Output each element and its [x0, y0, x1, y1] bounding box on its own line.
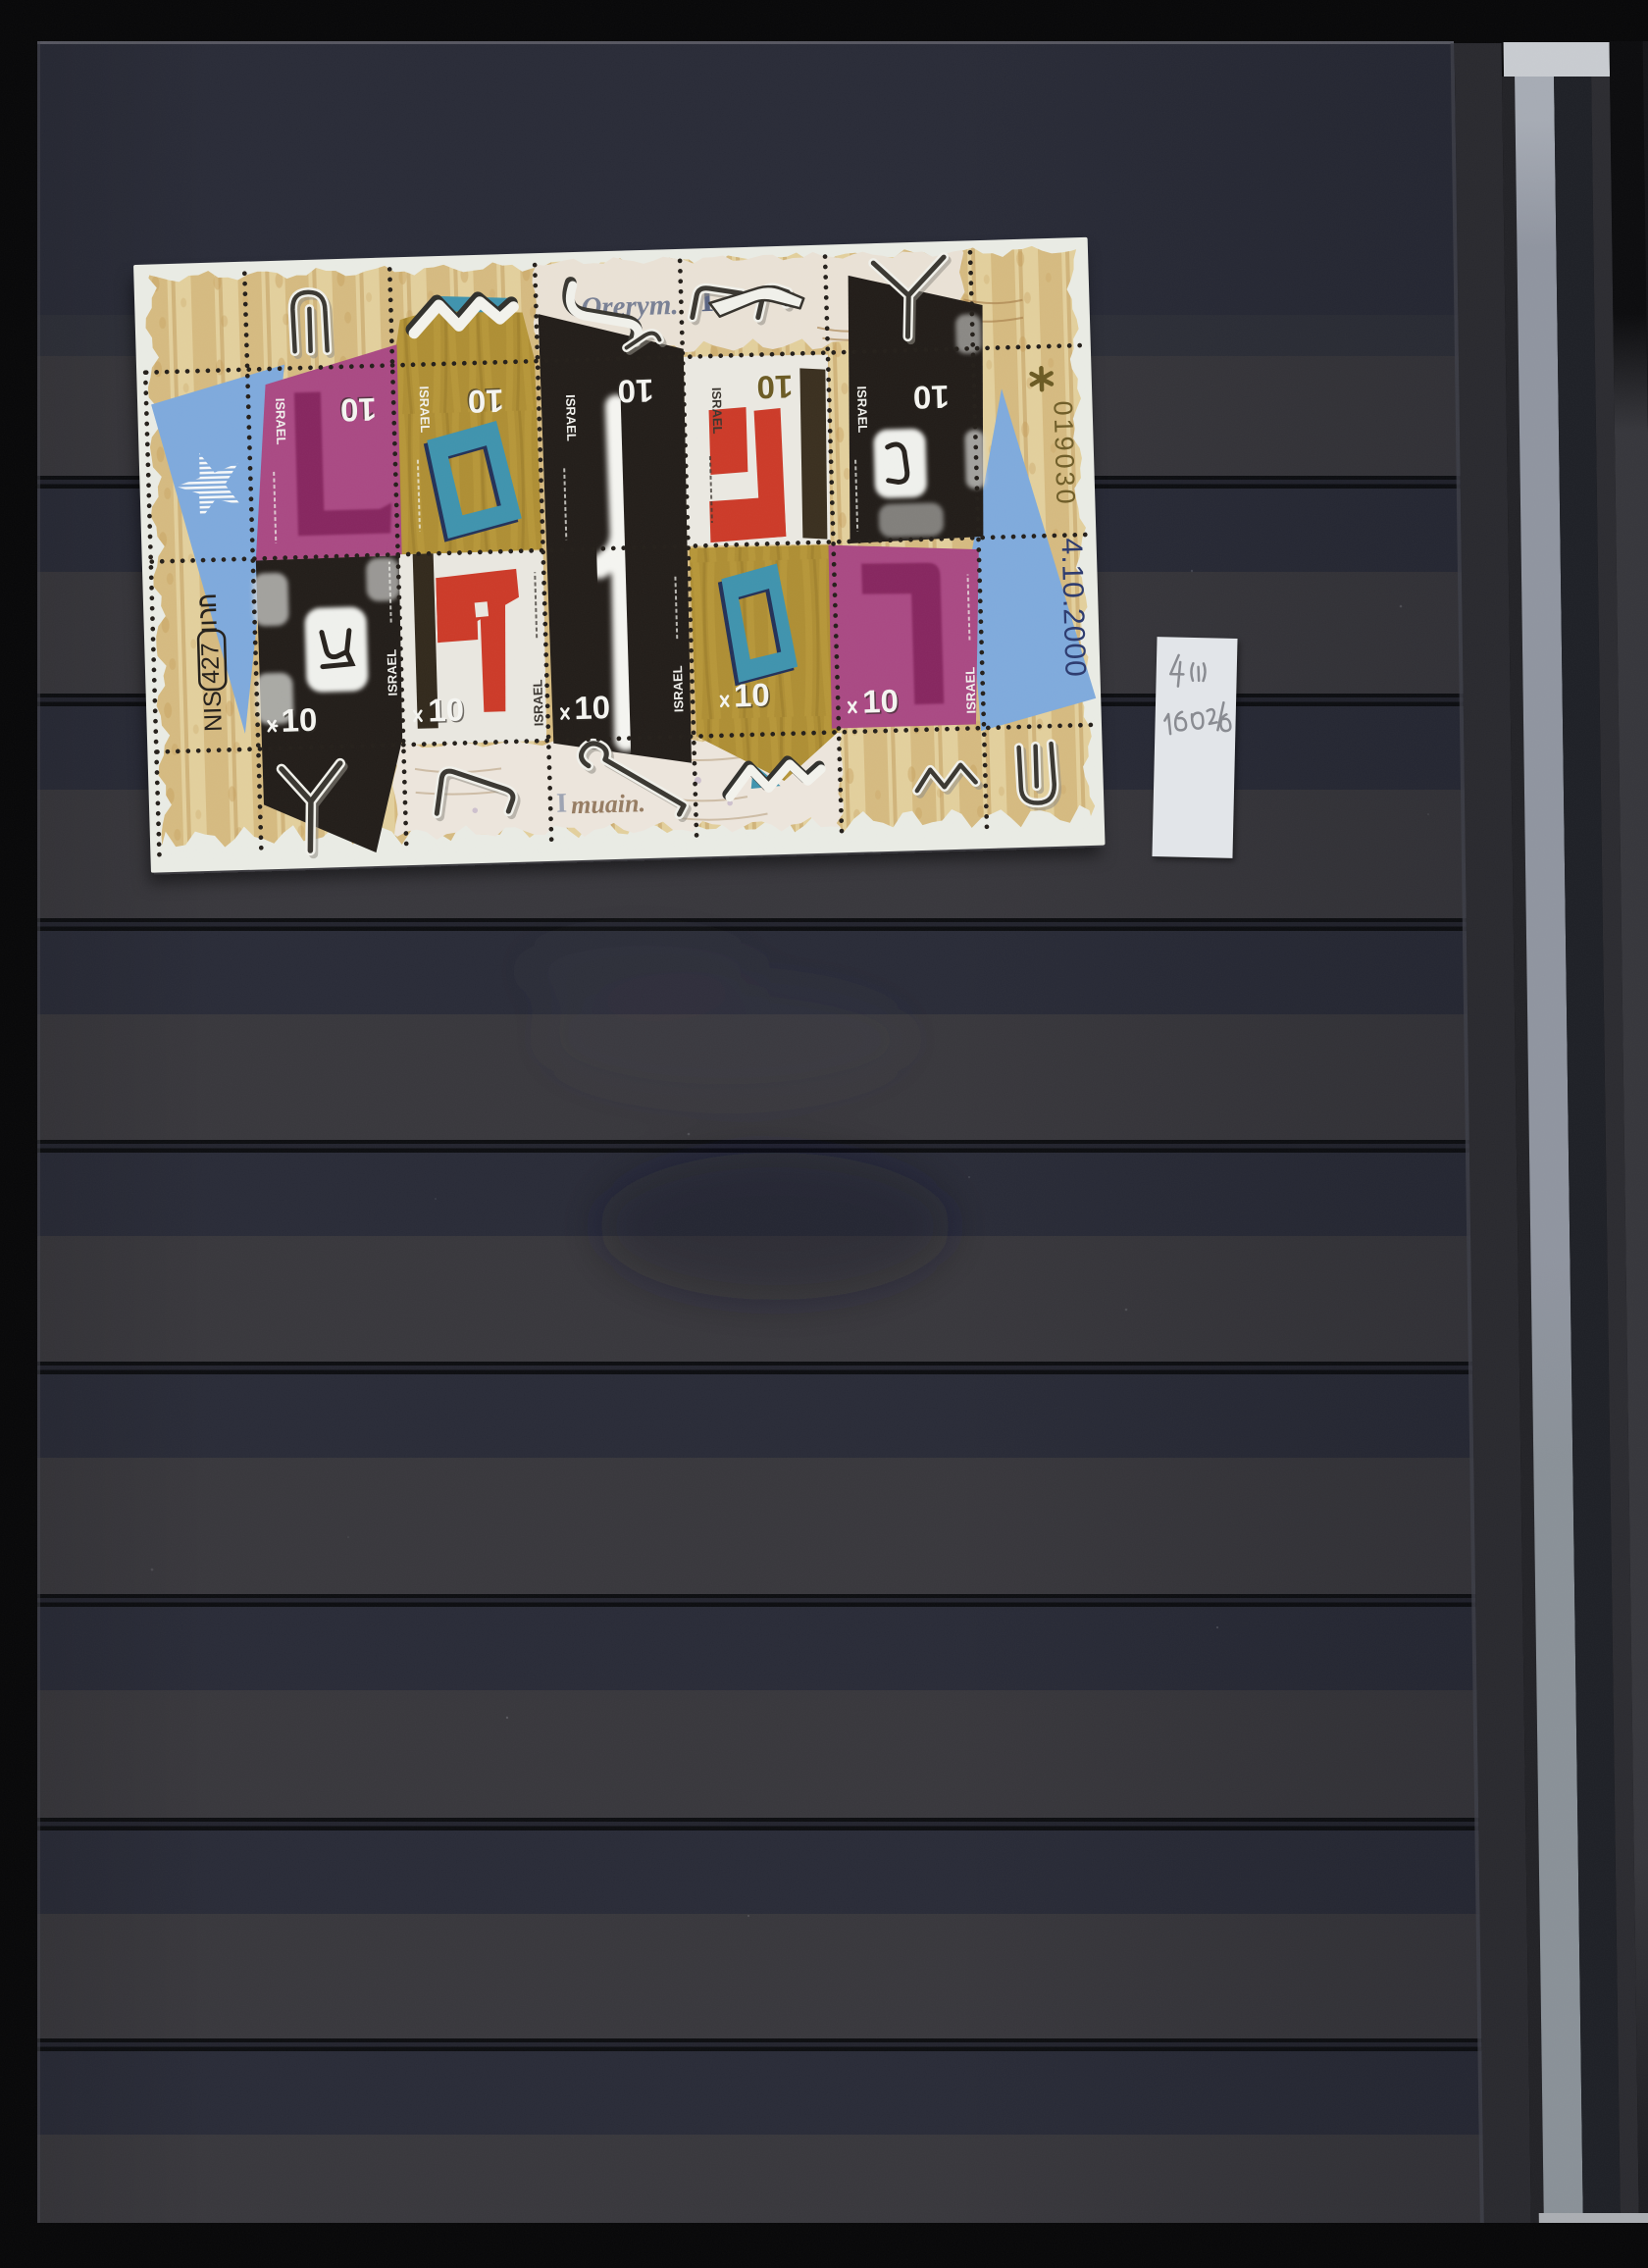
svg-text:ISRAEL: ISRAEL: [563, 394, 579, 441]
svg-text:ISRAEL: ISRAEL: [384, 649, 399, 696]
svg-text:4.10.2000: 4.10.2000: [1055, 538, 1091, 678]
svg-text:10: 10: [733, 676, 770, 713]
svg-text:ISRAEL: ISRAEL: [854, 386, 870, 433]
svg-text:10: 10: [574, 689, 611, 726]
svg-text:muain.: muain.: [571, 789, 646, 819]
svg-text:ISRAEL: ISRAEL: [962, 667, 978, 714]
svg-text:10: 10: [862, 683, 900, 720]
svg-text:10: 10: [756, 369, 794, 406]
svg-text:ISRAEL: ISRAEL: [417, 386, 433, 433]
svg-text:10: 10: [467, 383, 504, 420]
svg-text:ISRAEL: ISRAEL: [530, 679, 545, 726]
svg-text:427: 427: [196, 643, 225, 685]
svg-text:10: 10: [617, 373, 654, 410]
svg-text:019030: 019030: [1048, 400, 1080, 507]
svg-text:I: I: [556, 788, 568, 818]
svg-text:10: 10: [339, 391, 377, 429]
svg-text:NIS: NIS: [199, 691, 228, 732]
svg-text:ISRAEL: ISRAEL: [670, 665, 686, 712]
svg-text:ISRAEL: ISRAEL: [709, 387, 725, 435]
svg-text:ISRAEL: ISRAEL: [273, 398, 288, 445]
svg-text:10: 10: [281, 701, 318, 739]
svg-text:10: 10: [912, 379, 950, 416]
svg-text:10: 10: [428, 691, 465, 728]
